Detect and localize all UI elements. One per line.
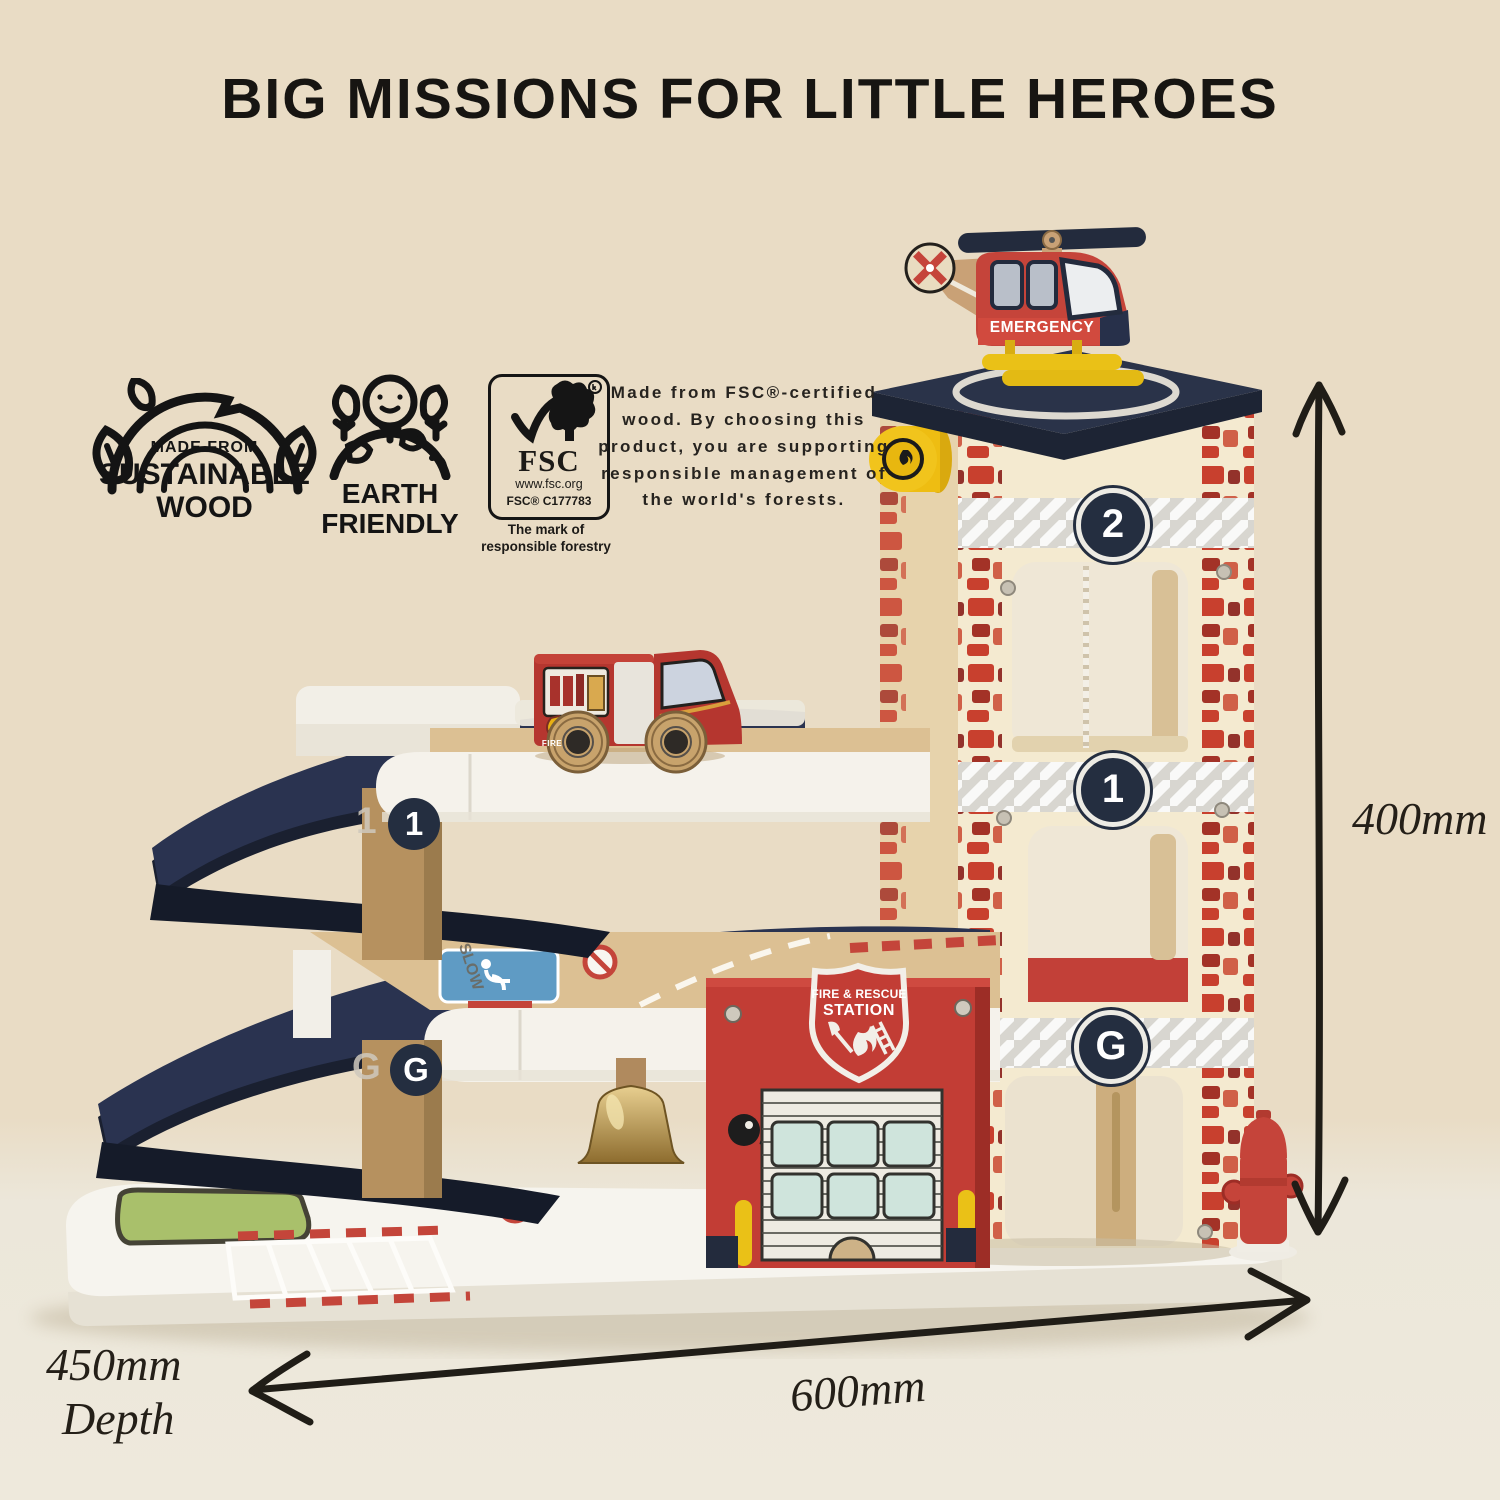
garage-door <box>762 1090 942 1260</box>
helicopter-windshield <box>1062 260 1120 318</box>
tower-window-upper <box>1012 562 1188 752</box>
pillar-badge-1: 1 <box>388 798 440 850</box>
truck-wheel <box>646 712 706 772</box>
badge-text-earth: EARTH <box>308 480 472 508</box>
toy-fire-station-photo <box>0 0 1500 1500</box>
earth-trees-icon <box>308 372 472 480</box>
pillar-badge-g: G <box>390 1044 442 1096</box>
fsc-tagline: The mark of responsible forestry <box>458 522 634 556</box>
fsc-website: www.fsc.org <box>491 477 607 491</box>
badge-text-wood: WOOD <box>82 493 327 523</box>
earth-friendly-badge: EARTH FRIENDLY <box>308 372 472 542</box>
sustainable-wood-badge: MADE FROM SUSTAINABLE WOOD <box>82 378 327 543</box>
helicopter-skid <box>982 354 1122 370</box>
pillar-label-1-side: 1 <box>356 800 377 842</box>
badge-text-made-from: MADE FROM <box>82 440 327 456</box>
fsc-license-code: FSC® C177783 <box>491 494 607 508</box>
shield-text-line1: FIRE & RESCUE <box>806 987 912 1001</box>
rescue-helicopter <box>906 227 1146 386</box>
tower-floor-badge-2: 2 <box>1076 488 1150 562</box>
pillar-label-g-side: G <box>352 1046 381 1088</box>
helicopter-skid <box>1002 370 1144 386</box>
height-dimension-label: 400mm <box>1352 792 1487 845</box>
tail-rotor <box>906 244 954 292</box>
page-title: BIG MISSIONS FOR LITTLE HEROES <box>0 66 1500 132</box>
badge-text-sustainable: SUSTAINABLE <box>82 460 327 490</box>
fire-truck <box>534 650 742 772</box>
depth-dimension-label: Depth <box>62 1392 174 1445</box>
truck-fire-label: FIRE <box>537 739 567 748</box>
tower-window-middle <box>1028 826 1188 1002</box>
tower-floor-badge-1: 1 <box>1076 753 1150 827</box>
badge-text-friendly: FRIENDLY <box>308 510 472 538</box>
fsc-acronym: FSC <box>491 443 607 479</box>
product-infographic: BIG MISSIONS FOR LITTLE HEROES MADE FROM… <box>0 0 1500 1500</box>
depth-dimension-value: 450mm <box>46 1338 181 1391</box>
tower-floor-badge-g: G <box>1074 1010 1148 1084</box>
width-dimension-label: 600mm <box>788 1359 927 1422</box>
tower-window-ground <box>1005 1076 1183 1246</box>
fsc-certification-box: FSC www.fsc.org FSC® C177783 <box>488 374 610 520</box>
fsc-description: Made from FSC®-certified wood. By choosi… <box>598 380 890 514</box>
height-arrow <box>1318 385 1319 1232</box>
fsc-tree-check-icon <box>491 379 607 445</box>
helicopter-emergency-label: EMERGENCY <box>984 319 1100 337</box>
shield-text-line2: STATION <box>806 1002 912 1020</box>
